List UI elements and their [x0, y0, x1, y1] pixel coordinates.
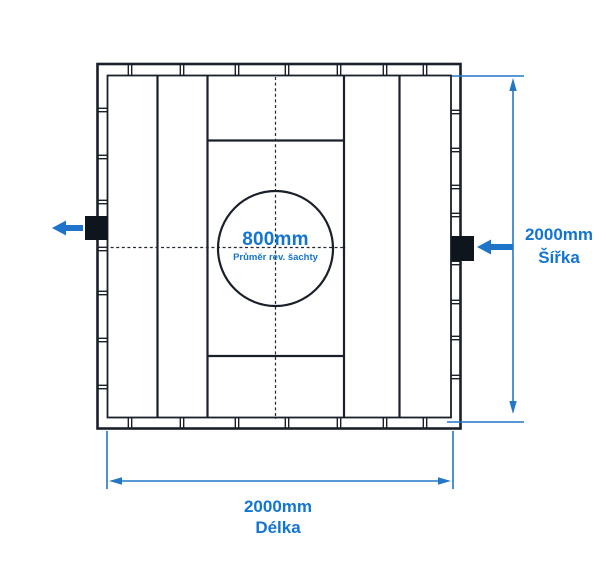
tank-top-view-diagram: 800mm Průměr rev. šachty 2000mm Šířka 20… [0, 0, 600, 578]
arrowhead-left-icon [109, 477, 122, 484]
arrowhead-up-icon [509, 78, 516, 91]
left-wall-joints [98, 108, 108, 388]
right-pipe-fitting [452, 236, 475, 261]
inflow-arrow-icon [477, 240, 513, 255]
left-pipe-fitting [85, 216, 108, 240]
width-dimension-label: Šířka [521, 249, 597, 266]
shaft-diameter-value: 800mm [205, 230, 346, 249]
top-wall-joints [128, 65, 426, 76]
diagram-canvas [0, 0, 600, 578]
length-dimension-value: 2000mm [208, 498, 348, 515]
bottom-wall-joints [128, 418, 426, 429]
dimension-arrowheads [109, 78, 517, 485]
length-dimension-label: Délka [208, 519, 348, 536]
shaft-diameter-caption: Průměr rev. šachty [205, 253, 346, 263]
arrowhead-right-icon [438, 477, 451, 484]
outflow-arrow-icon [52, 221, 83, 236]
width-dimension-value: 2000mm [521, 226, 597, 243]
arrowhead-down-icon [509, 401, 516, 414]
